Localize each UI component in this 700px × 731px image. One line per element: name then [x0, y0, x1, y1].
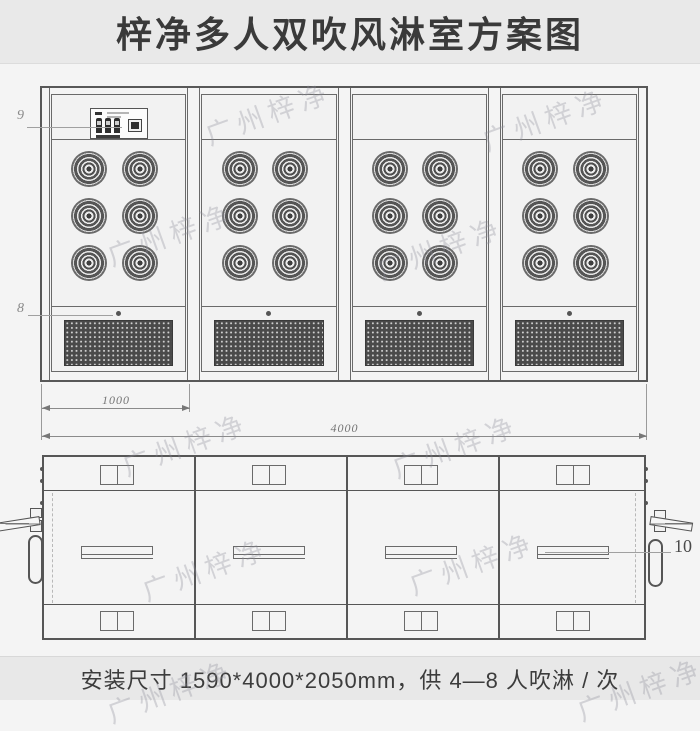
blower-nozzle-icon — [522, 198, 558, 234]
installation-size-text: 安装尺寸 1590*4000*2050mm，供 4—8 人吹淋 / 次 — [81, 663, 620, 695]
screw-dot — [266, 311, 271, 316]
fan-unit — [100, 465, 134, 485]
blower-nozzle-icon — [422, 151, 458, 187]
blower-nozzle-icon — [272, 151, 308, 187]
frame-edge — [638, 88, 646, 380]
screw-dot — [417, 311, 422, 316]
panel-header — [52, 95, 185, 140]
fan-unit — [100, 611, 134, 631]
hinge-dot — [40, 479, 44, 483]
control-panel — [90, 108, 148, 139]
inner-wall-line — [44, 604, 644, 605]
page-title: 梓净多人双吹风淋室方案图 — [116, 6, 584, 58]
blower-nozzle-icon — [71, 198, 107, 234]
dimension-line-4000 — [42, 436, 647, 437]
panel-header — [353, 95, 486, 140]
hinge-dot — [644, 501, 648, 505]
shower-panel-4 — [502, 94, 637, 372]
blower-nozzle-icon — [71, 151, 107, 187]
blower-nozzle-icon — [573, 198, 609, 234]
arrowhead-icon — [182, 405, 190, 411]
module-divider — [194, 457, 196, 638]
switch-icon — [114, 118, 120, 133]
door-handle-left — [28, 535, 43, 584]
blower-nozzle-icon — [71, 245, 107, 281]
blower-nozzle-icon — [222, 151, 258, 187]
plan-view — [42, 455, 646, 640]
grille-section — [202, 306, 335, 371]
door-handle-right — [648, 539, 663, 587]
inner-wall-line — [44, 490, 644, 491]
arrowhead-icon — [42, 433, 50, 439]
blower-nozzle-icon — [573, 151, 609, 187]
blower-nozzle-icon — [272, 198, 308, 234]
screw-dot — [116, 311, 121, 316]
nozzle-grid — [503, 140, 636, 306]
blower-nozzle-icon — [222, 198, 258, 234]
front-elevation-view — [40, 86, 648, 382]
shower-panel-1 — [51, 94, 186, 372]
switch-icon — [96, 118, 102, 133]
callout-control-panel: 9 — [17, 108, 24, 124]
fan-unit — [556, 611, 590, 631]
blower-nozzle-icon — [222, 245, 258, 281]
blower-nozzle-icon — [422, 245, 458, 281]
blower-nozzle-icon — [122, 151, 158, 187]
display-icon — [128, 119, 142, 132]
blower-nozzle-icon — [573, 245, 609, 281]
hinge-dot — [644, 467, 648, 471]
nozzle-bank — [385, 546, 457, 559]
nozzle-bank — [81, 546, 153, 559]
blower-nozzle-icon — [372, 198, 408, 234]
exhaust-grille — [365, 320, 474, 366]
hinge-dot — [40, 467, 44, 471]
nozzle-grid — [353, 140, 486, 306]
shower-panel-3 — [352, 94, 487, 372]
dimension-total-width: 4000 — [42, 421, 647, 436]
blower-nozzle-icon — [122, 245, 158, 281]
blower-nozzle-icon — [372, 245, 408, 281]
exhaust-grille — [64, 320, 173, 366]
blower-nozzle-icon — [372, 151, 408, 187]
dimension-module-width: 1000 — [42, 393, 190, 408]
leader-line — [545, 552, 671, 553]
leader-line — [27, 127, 122, 128]
frame-post — [488, 88, 501, 380]
screw-dot — [567, 311, 572, 316]
door-frame-dashed-line — [635, 493, 636, 603]
title-bar: 梓净多人双吹风淋室方案图 — [0, 0, 700, 64]
module-divider — [346, 457, 348, 638]
nozzle-grid — [52, 140, 185, 306]
hinge-dot — [644, 479, 648, 483]
exhaust-grille — [515, 320, 624, 366]
blower-nozzle-icon — [122, 198, 158, 234]
fan-unit — [252, 465, 286, 485]
control-label-bar — [96, 135, 120, 138]
frame-edge — [42, 88, 50, 380]
blower-nozzle-icon — [422, 198, 458, 234]
exhaust-grille — [214, 320, 323, 366]
fan-unit — [404, 611, 438, 631]
fan-unit — [404, 465, 438, 485]
module-divider — [498, 457, 500, 638]
panel-header — [503, 95, 636, 140]
arrowhead-icon — [42, 405, 50, 411]
blower-nozzle-icon — [522, 151, 558, 187]
dimension-line-1000 — [42, 408, 190, 409]
frame-post — [187, 88, 200, 380]
control-indicator — [95, 112, 102, 115]
callout-grille: 8 — [17, 301, 24, 317]
frame-post — [338, 88, 351, 380]
panel-header — [202, 95, 335, 140]
blower-nozzle-icon — [522, 245, 558, 281]
hinge-dot — [40, 501, 44, 505]
door-frame-dashed-line — [52, 493, 53, 603]
nozzle-bank — [233, 546, 305, 559]
arrowhead-icon — [639, 433, 647, 439]
grille-section — [503, 306, 636, 371]
footer-bar: 安装尺寸 1590*4000*2050mm，供 4—8 人吹淋 / 次 — [0, 656, 700, 700]
shower-panel-2 — [201, 94, 336, 372]
switch-icon — [105, 118, 111, 133]
callout-door: 10 — [674, 536, 692, 557]
fan-unit — [252, 611, 286, 631]
nozzle-grid — [202, 140, 335, 306]
fan-unit — [556, 465, 590, 485]
grille-section — [353, 306, 486, 371]
blower-nozzle-icon — [272, 245, 308, 281]
leader-line — [28, 315, 113, 316]
